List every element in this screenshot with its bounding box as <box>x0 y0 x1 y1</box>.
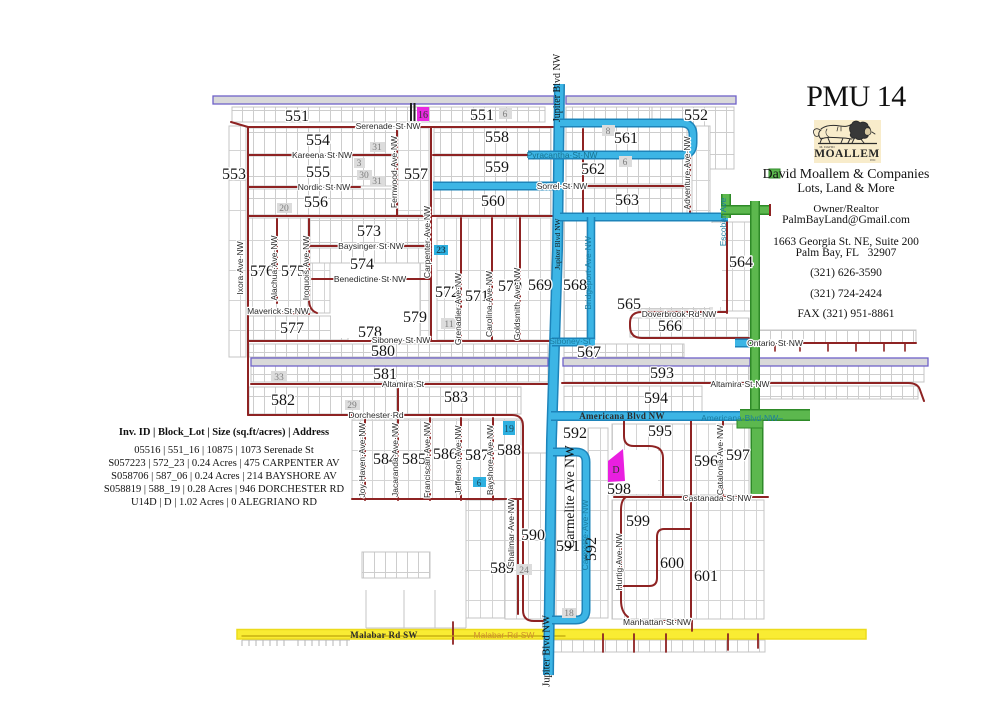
svg-text:6: 6 <box>503 110 508 120</box>
svg-text:Alachua·Ave·NW: Alachua·Ave·NW <box>269 235 279 300</box>
svg-text:PalmBayLand@Gmail.com: PalmBayLand@Gmail.com <box>782 214 910 226</box>
svg-text:594: 594 <box>644 390 668 407</box>
svg-text:Carmelite Ave NW: Carmelite Ave NW <box>562 445 577 548</box>
svg-text:593: 593 <box>650 365 674 382</box>
svg-text:566: 566 <box>658 318 682 335</box>
svg-text:Ixora·Ave·NW: Ixora·Ave·NW <box>235 241 245 294</box>
svg-text:Jefferson·Ave·NW: Jefferson·Ave·NW <box>453 425 463 494</box>
svg-text:Jacaranda·Ave·NW: Jacaranda·Ave·NW <box>390 423 400 497</box>
svg-text:INC: INC <box>870 158 876 162</box>
svg-text:569: 569 <box>528 277 552 294</box>
svg-text:31: 31 <box>372 177 382 187</box>
svg-text:Maverick·St·NW: Maverick·St·NW <box>247 306 309 316</box>
svg-text:Bridgeport·Ave·NW: Bridgeport·Ave·NW <box>583 236 593 310</box>
svg-text:579: 579 <box>403 309 427 326</box>
svg-text:6: 6 <box>623 158 628 168</box>
svg-text:573: 573 <box>357 223 381 240</box>
svg-text:580: 580 <box>371 343 395 360</box>
svg-text:590: 590 <box>521 527 545 544</box>
svg-text:574: 574 <box>350 256 374 273</box>
svg-text:31: 31 <box>372 143 382 153</box>
svg-text:3: 3 <box>357 159 362 169</box>
svg-text:Fernwood·Ave·NW: Fernwood·Ave·NW <box>389 136 399 208</box>
svg-text:Siboney·St: Siboney·St <box>549 336 591 346</box>
svg-text:Baysinger·St·NW: Baysinger·St·NW <box>338 241 404 251</box>
svg-text:Dorchester·Rd: Dorchester·Rd <box>348 410 404 420</box>
svg-text:Nordic·St·NW: Nordic·St·NW <box>298 182 350 192</box>
svg-text:Serenade·St·NW: Serenade·St·NW <box>356 121 421 131</box>
svg-text:19: 19 <box>504 424 514 435</box>
svg-text:563: 563 <box>615 192 639 209</box>
svg-text:Goldsmith·Ave·NW: Goldsmith·Ave·NW <box>512 268 522 341</box>
svg-text:Ontario·St·NW: Ontario·St·NW <box>747 338 803 348</box>
svg-text:Adventure·Ave·NW: Adventure·Ave·NW <box>682 136 692 209</box>
svg-text:18: 18 <box>564 609 574 619</box>
svg-text:Americana Blvd NW: Americana Blvd NW <box>579 411 665 421</box>
svg-text:559: 559 <box>485 159 509 176</box>
svg-text:23: 23 <box>436 246 446 256</box>
svg-text:(321) 724-2424: (321) 724-2424 <box>810 288 882 300</box>
svg-text:Benedictine·St·NW: Benedictine·St·NW <box>334 274 406 284</box>
svg-text:Malabar·Rd·SW: Malabar·Rd·SW <box>474 630 535 640</box>
svg-text:Carolina·Ave·NW: Carolina·Ave·NW <box>484 271 494 337</box>
svg-text:552: 552 <box>684 107 708 124</box>
svg-text:Catalonia·Ave·NW: Catalonia·Ave·NW <box>715 425 725 495</box>
svg-text:551: 551 <box>285 108 309 125</box>
svg-text:Americana·Blvd·NW–: Americana·Blvd·NW– <box>701 413 783 423</box>
svg-text:Altamira·St: Altamira·St <box>382 379 425 389</box>
svg-text:595: 595 <box>648 423 672 440</box>
svg-text:30: 30 <box>359 171 369 181</box>
svg-text:598: 598 <box>607 481 631 498</box>
svg-text:561: 561 <box>614 130 638 147</box>
svg-text:Carpenter·Ave·NW: Carpenter·Ave·NW <box>422 206 432 278</box>
svg-text:Siboney·St·NW: Siboney·St·NW <box>372 335 431 345</box>
svg-text:600: 600 <box>660 555 684 572</box>
svg-text:557: 557 <box>404 166 428 183</box>
svg-text:Franciscan·Ave·NW: Franciscan·Ave·NW <box>422 422 432 498</box>
svg-text:Grenadier·Ave·NW: Grenadier·Ave·NW <box>453 273 463 345</box>
svg-text:Palm Bay, FL 32907: Palm Bay, FL 32907 <box>796 247 897 259</box>
svg-text:PMU 14: PMU 14 <box>806 80 906 113</box>
svg-text:597: 597 <box>726 447 750 464</box>
svg-text:Kareena·St·NW: Kareena·St·NW <box>292 150 352 160</box>
svg-text:20: 20 <box>279 204 289 214</box>
svg-text:FAX (321) 951-8861: FAX (321) 951-8861 <box>798 308 895 320</box>
svg-text:Altamira·St·NW: Altamira·St·NW <box>710 379 769 389</box>
svg-text:558: 558 <box>485 129 509 146</box>
svg-text:Jupiter Blvd NW: Jupiter Blvd NW <box>552 53 563 122</box>
svg-text:05516 | 551_16 | 10875 | 1: 05516 | 551_16 | 10875 | 1073 Serenade S… <box>134 445 314 456</box>
svg-text:Doverbrook·Rd·NW: Doverbrook·Rd·NW <box>642 309 717 319</box>
svg-text:David Moallem & Companies: David Moallem & Companies <box>763 166 930 181</box>
svg-text:S058819 | 588_19 | 0.28 Acres: S058819 | 588_19 | 0.28 Acres | 946 DORC… <box>104 484 345 495</box>
svg-text:8: 8 <box>606 127 611 137</box>
svg-text:560: 560 <box>481 193 505 210</box>
svg-text:S058706 | 587_06 | 0.24 Acres: S058706 | 587_06 | 0.24 Acres | 214 BAYS… <box>111 471 337 482</box>
svg-text:U14D | D | 1.02 Acres | 0 AL: U14D | D | 1.02 Acres | 0 ALEGRIANO RD <box>131 497 317 508</box>
svg-text:S057223 | 572_23 | 0.24 Acres: S057223 | 572_23 | 0.24 Acres | 475 CARP… <box>108 458 340 469</box>
svg-text:551: 551 <box>470 107 494 124</box>
svg-text:16: 16 <box>418 110 428 121</box>
svg-text:Jupiter Blvd NW: Jupiter Blvd NW <box>542 615 553 687</box>
svg-text:Iroquois·Ave·NW: Iroquois·Ave·NW <box>301 236 311 301</box>
svg-text:556: 556 <box>304 194 328 211</box>
svg-text:553: 553 <box>222 166 246 183</box>
svg-text:583: 583 <box>444 389 468 406</box>
svg-text:Hurtig·Ave·NW: Hurtig·Ave·NW <box>614 534 624 591</box>
svg-text:599: 599 <box>626 513 650 530</box>
svg-text:588: 588 <box>497 442 521 459</box>
svg-text:D: D <box>612 465 619 476</box>
svg-text:Bayshore·Ave·NW: Bayshore·Ave·NW <box>485 425 495 495</box>
svg-text:Carmelite·Ave·NW: Carmelite·Ave·NW <box>580 500 590 571</box>
svg-text:Jupiter Blvd NW: Jupiter Blvd NW <box>553 217 562 269</box>
svg-text:567: 567 <box>577 344 601 361</box>
svg-text:Pyracantha·St·NW: Pyracantha·St·NW <box>527 150 598 160</box>
svg-text:562: 562 <box>581 161 605 178</box>
svg-text:601: 601 <box>694 568 718 585</box>
svg-text:Malabar Rd SW: Malabar Rd SW <box>350 630 417 640</box>
svg-text:Manhattan·St·NW: Manhattan·St·NW <box>623 617 691 627</box>
svg-text:Lots, Land & More: Lots, Land & More <box>797 181 895 195</box>
svg-text:Shalimar·Ave·NW: Shalimar·Ave·NW <box>506 499 516 567</box>
svg-text:564: 564 <box>729 254 753 271</box>
svg-text:582: 582 <box>271 392 295 409</box>
svg-text:Sorrel·St·NW: Sorrel·St·NW <box>537 181 588 191</box>
svg-text:(321) 626-3590: (321) 626-3590 <box>810 267 882 279</box>
svg-text:Escobar·Ave: Escobar·Ave <box>718 197 728 246</box>
svg-text:24: 24 <box>519 566 529 576</box>
svg-text:577: 577 <box>280 320 304 337</box>
svg-text:555: 555 <box>306 164 330 181</box>
svg-text:554: 554 <box>306 132 330 149</box>
svg-text:6: 6 <box>477 478 482 488</box>
svg-text:592: 592 <box>563 425 587 442</box>
svg-text:Inv. ID | Block_Lot | Size (sq: Inv. ID | Block_Lot | Size (sq.ft/acres)… <box>119 427 329 438</box>
svg-text:565: 565 <box>617 296 641 313</box>
svg-text:Joy·Haven·Ave·NW: Joy·Haven·Ave·NW <box>357 423 367 498</box>
svg-text:33: 33 <box>274 373 284 383</box>
